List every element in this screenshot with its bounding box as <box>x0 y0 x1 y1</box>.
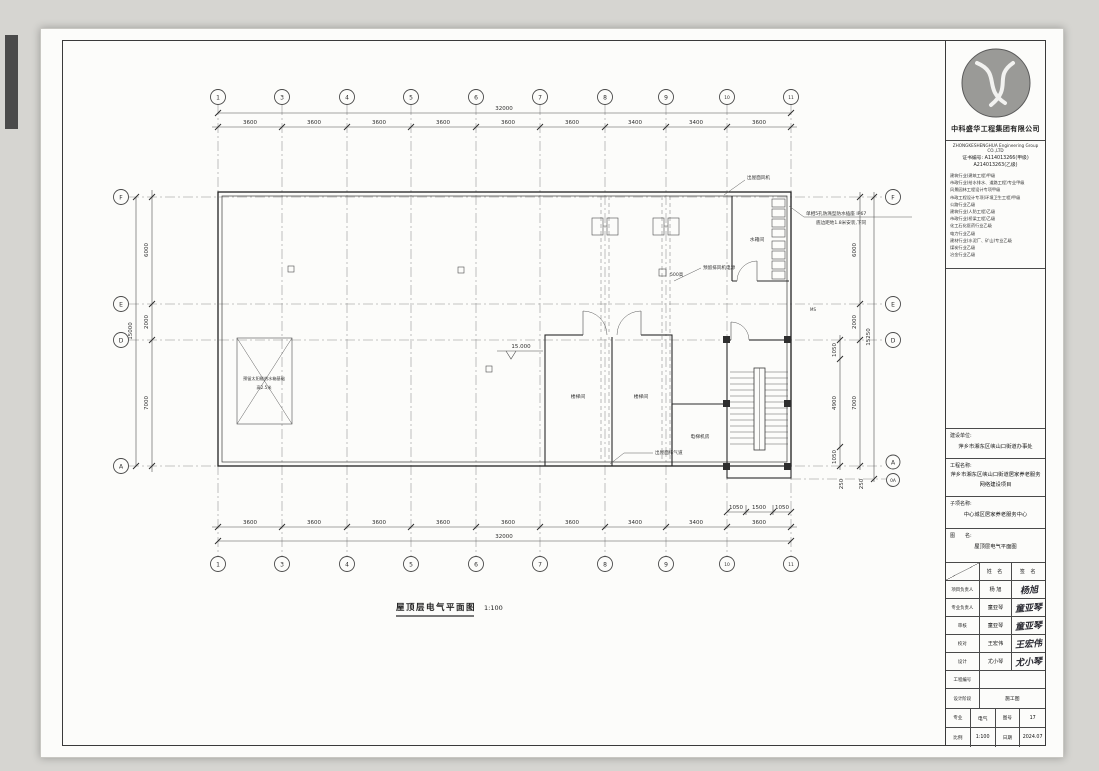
person-name: 童亚琴 <box>980 617 1013 634</box>
role-label: 校对 <box>946 635 980 652</box>
person-name: 杨 旭 <box>980 581 1013 598</box>
date-value: 2024.07 <box>1020 728 1045 747</box>
drawing-frame: 中科盛华工程集团有限公司 ZHONGKESHENGHUA Engineering… <box>62 40 1046 746</box>
signature-table: 姓 名 签 名 项目负责人 杨 旭 杨旭 专业负责人 童亚琴 童亚琴 审核 童亚… <box>946 563 1045 747</box>
logo-section: 中科盛华工程集团有限公司 <box>946 41 1045 141</box>
subproject-value: 中心城区居家养老服务中心 <box>946 510 1045 518</box>
signature-header-row: 姓 名 签 名 <box>946 563 1045 581</box>
title-block: 中科盛华工程集团有限公司 ZHONGKESHENGHUA Engineering… <box>945 41 1045 745</box>
signature: 杨旭 <box>1019 582 1038 596</box>
col-header-sign: 签 名 <box>1012 563 1045 580</box>
role-label: 设计 <box>946 653 980 670</box>
design-stage-label: 设计阶段 <box>946 689 980 708</box>
qualification-item: 建筑行业(建筑工程)甲级 <box>950 172 1045 179</box>
cert-number-1: 证书编号: A114013266(甲级) <box>946 155 1045 162</box>
role-label: 专业负责人 <box>946 599 980 616</box>
qualification-list: 建筑行业(建筑工程)甲级 市政行业(给水排水、道路工程)专业甲级 风景园林工程设… <box>946 172 1045 258</box>
owner-label: 建设单位: <box>946 429 1045 439</box>
scale-value: 1:100 <box>971 728 996 747</box>
table-row: 审核 童亚琴 童亚琴 <box>946 617 1045 635</box>
figure-number-label: 图号 <box>996 709 1021 727</box>
table-row: 校对 王宏伟 王宏伟 <box>946 635 1045 653</box>
major-value: 电气 <box>971 709 996 727</box>
major-label: 专业 <box>946 709 971 727</box>
logo-graphic <box>947 41 1045 119</box>
signature: 尤小琴 <box>1015 654 1043 669</box>
blank-section <box>946 269 1045 429</box>
signature: 童亚琴 <box>1015 618 1043 633</box>
company-name-en: ZHONGKESHENGHUA Engineering Group CO.,LT… <box>946 143 1045 153</box>
qualification-item: 建材行业(水泥厂、矿山)专业乙级 <box>950 237 1045 244</box>
project-number-label: 工程编号 <box>946 671 980 688</box>
person-name: 童亚琴 <box>980 599 1013 616</box>
project-label: 工程名称: <box>946 459 1045 469</box>
owner-section: 建设单位: 萍乡市湘东区峡山口街道办事处 <box>946 429 1045 459</box>
qualification-item: 市政行业(给水排水、道路工程)专业甲级 <box>950 179 1045 186</box>
qualification-item: 风景园林工程设计专项甲级 <box>950 186 1045 193</box>
company-logo <box>946 41 1045 123</box>
cert-number-2: A214013263(乙级) <box>946 162 1045 169</box>
signature: 王宏伟 <box>1015 636 1043 651</box>
scale-label: 比例 <box>946 728 971 747</box>
col-header-name: 姓 名 <box>980 563 1013 580</box>
qualification-item: 公路行业乙级 <box>950 201 1045 208</box>
design-stage-value: 施工图 <box>980 689 1045 708</box>
owner-value: 萍乡市湘东区峡山口街道办事处 <box>946 442 1045 450</box>
project-number-value <box>980 671 1045 688</box>
qualification-item: 市政行业(桥梁工程)乙级 <box>950 215 1045 222</box>
table-row: 项目负责人 杨 旭 杨旭 <box>946 581 1045 599</box>
figure-name-label: 图 名: <box>946 529 1045 539</box>
figure-name-section: 图 名: 屋顶层电气平面图 <box>946 529 1045 563</box>
qualification-item: 冶金行业乙级 <box>950 251 1045 258</box>
qualification-item: 市政工程设计专项(环境卫生工程)甲级 <box>950 194 1045 201</box>
major-fig-row: 专业 电气 图号 17 <box>946 709 1045 728</box>
person-name: 王宏伟 <box>980 635 1013 652</box>
qualification-item: 建筑行业(人防工程)乙级 <box>950 208 1045 215</box>
project-value-line2: 网络建设项目 <box>946 481 1045 489</box>
table-row: 专业负责人 童亚琴 童亚琴 <box>946 599 1045 617</box>
subproject-section: 子项名称: 中心城区居家养老服务中心 <box>946 497 1045 529</box>
scanned-drawing-page: 32000 3600 3600 3600 3600 3600 3600 3400… <box>0 0 1099 771</box>
figure-number-value: 17 <box>1020 709 1045 727</box>
certificate-section: ZHONGKESHENGHUA Engineering Group CO.,LT… <box>946 141 1045 269</box>
company-name-cn: 中科盛华工程集团有限公司 <box>946 124 1045 134</box>
qualification-item: 化工石化医药行业乙级 <box>950 222 1045 229</box>
figure-name-value: 屋顶层电气平面图 <box>946 542 1045 550</box>
role-label: 审核 <box>946 617 980 634</box>
person-name: 尤小琴 <box>980 653 1013 670</box>
qualification-item: 煤炭行业乙级 <box>950 244 1045 251</box>
subproject-label: 子项名称: <box>946 497 1045 507</box>
role-label: 项目负责人 <box>946 581 980 598</box>
diagonal-header-cell <box>946 563 980 580</box>
qualification-item: 电力行业乙级 <box>950 230 1045 237</box>
signature: 童亚琴 <box>1015 600 1043 615</box>
project-value-line1: 萍乡市湘东区峡山口街道居家养老服务 <box>946 471 1045 479</box>
table-row: 设计 尤小琴 尤小琴 <box>946 653 1045 671</box>
scale-date-row: 比例 1:100 日期 2024.07 <box>946 728 1045 747</box>
project-section: 工程名称: 萍乡市湘东区峡山口街道居家养老服务 网络建设项目 <box>946 459 1045 497</box>
project-number-row: 工程编号 <box>946 671 1045 689</box>
design-stage-row: 设计阶段 施工图 <box>946 689 1045 709</box>
date-label: 日期 <box>996 728 1021 747</box>
